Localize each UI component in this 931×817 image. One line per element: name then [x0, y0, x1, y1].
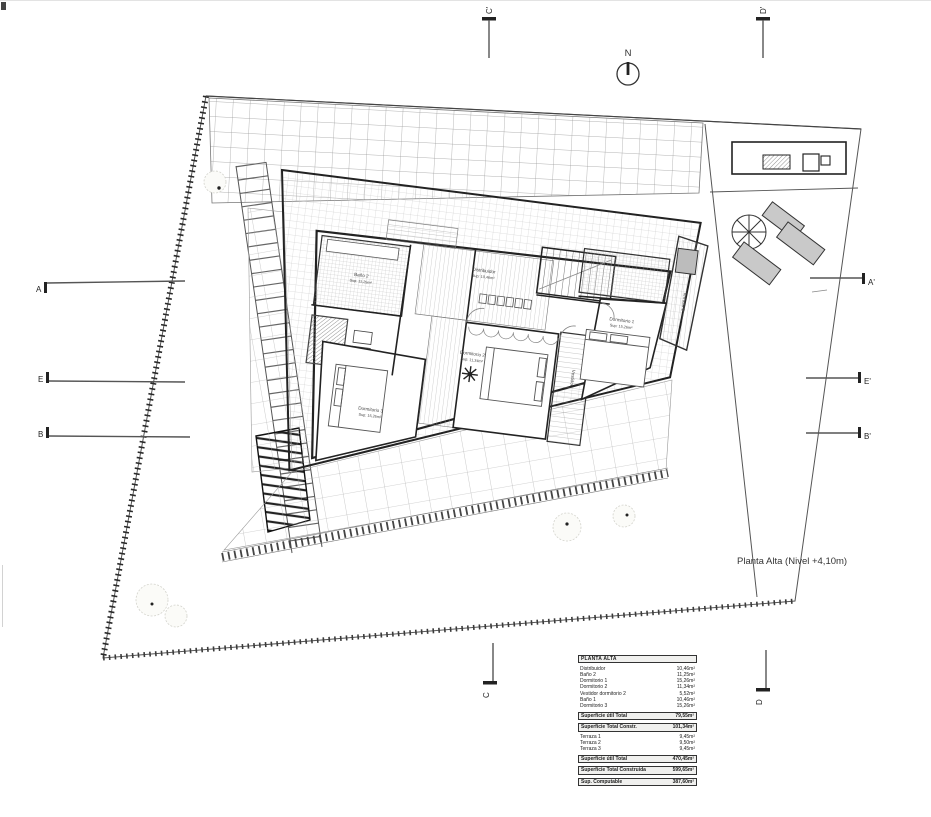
equipment-hatched-box [763, 155, 790, 169]
marker-E-prime: E' [806, 372, 871, 386]
summary-util-total-2: Superficie útil Total470,45m² [578, 755, 697, 763]
marker-B-prime: B' [806, 427, 871, 441]
svg-text:A': A' [868, 278, 875, 287]
marker-A-prime: A' [810, 273, 875, 287]
svg-text:E': E' [864, 377, 871, 386]
tree [136, 584, 168, 616]
tree [553, 513, 581, 541]
bed-double [328, 364, 387, 432]
table-row: Terraza 39,45m² [578, 746, 697, 752]
bar-label: Superficie Total Constr. [581, 724, 637, 730]
wc [353, 330, 372, 344]
floor-plan-canvas: Baño 2 Sup: 11,25m² Distribuidor Sup: 10… [0, 0, 931, 817]
svg-text:C: C [482, 692, 491, 698]
marker-B: B [38, 427, 190, 439]
tree [165, 605, 187, 627]
right-band-divider [705, 124, 757, 597]
bar-label: Sup. Computable [581, 779, 622, 785]
marker-C-prime: C' [482, 6, 496, 58]
marker-D-prime: D' [756, 6, 770, 58]
marker-D-bottom: D [755, 650, 770, 705]
summary-computable: Sup. Computable387,60m² [578, 778, 697, 786]
svg-text:B: B [38, 430, 43, 439]
plan-title: Planta Alta (Nivel +4,10m) [737, 556, 927, 567]
north-label: N [625, 48, 632, 59]
summary-util-total: Superficie útil Total79,55m² [578, 712, 697, 720]
bar-value: 470,45m² [673, 756, 694, 762]
outdoor-shower [675, 248, 698, 274]
north-arrow: N [617, 48, 639, 85]
marker-E: E [38, 372, 185, 384]
bar-value: 387,60m² [673, 779, 694, 785]
bar-label: Superficie Total Construida [581, 767, 646, 773]
bed-double [480, 347, 548, 406]
room-dormitorio2 [453, 322, 559, 439]
row-value: 9,45m² [679, 746, 695, 752]
svg-text:D: D [755, 699, 764, 705]
right-band-crossline [710, 188, 858, 192]
pillow [610, 335, 628, 344]
sun-loungers [733, 202, 825, 285]
bar-value: 79,55m² [675, 713, 694, 719]
summary-constr-total-2: Superficie Total Construida599,65m² [578, 766, 697, 774]
equipment-small-box [821, 156, 830, 165]
bar-label: Superficie útil Total [581, 756, 627, 762]
row-value: 15,26m² [677, 703, 695, 709]
areas-table-rooms: Distribuidor10,46m² Baño 211,25m² Dormit… [578, 666, 697, 709]
dim-tick [812, 290, 827, 292]
summary-constr-total: Superficie Total Constr.101,34m² [578, 723, 697, 731]
svg-text:C': C' [485, 6, 494, 14]
svg-text:B': B' [864, 432, 871, 441]
table-row: Dormitorio 315,26m² [578, 703, 697, 709]
tree [613, 505, 635, 527]
equipment-box [803, 154, 819, 171]
svg-text:E: E [38, 375, 43, 384]
right-band [705, 124, 858, 597]
floor-plan-page: { "title": "Planta Alta (Nivel +4,10m)",… [0, 0, 931, 817]
north-needle [627, 62, 630, 75]
marker-A: A [36, 281, 185, 294]
bar-label: Superficie útil Total [581, 713, 627, 719]
svg-text:A: A [36, 285, 42, 294]
spiral-staircase [732, 215, 766, 249]
marker-C-bottom: C [482, 643, 497, 698]
pillow [589, 332, 607, 341]
bar-value: 101,34m² [673, 724, 694, 730]
bed-double [580, 329, 650, 387]
svg-text:D': D' [759, 6, 768, 14]
row-label: Dormitorio 3 [580, 703, 607, 709]
rooftop-structure [732, 142, 846, 174]
areas-table-header: PLANTA ALTA [578, 655, 697, 663]
areas-table-terraces: Terraza 19,45m² Terraza 29,50m² Terraza … [578, 734, 697, 753]
lounger-3 [733, 242, 781, 285]
bar-value: 599,65m² [673, 767, 694, 773]
areas-table: PLANTA ALTA Distribuidor10,46m² Baño 211… [578, 655, 697, 786]
tree [204, 171, 226, 193]
row-label: Terraza 3 [580, 746, 601, 752]
